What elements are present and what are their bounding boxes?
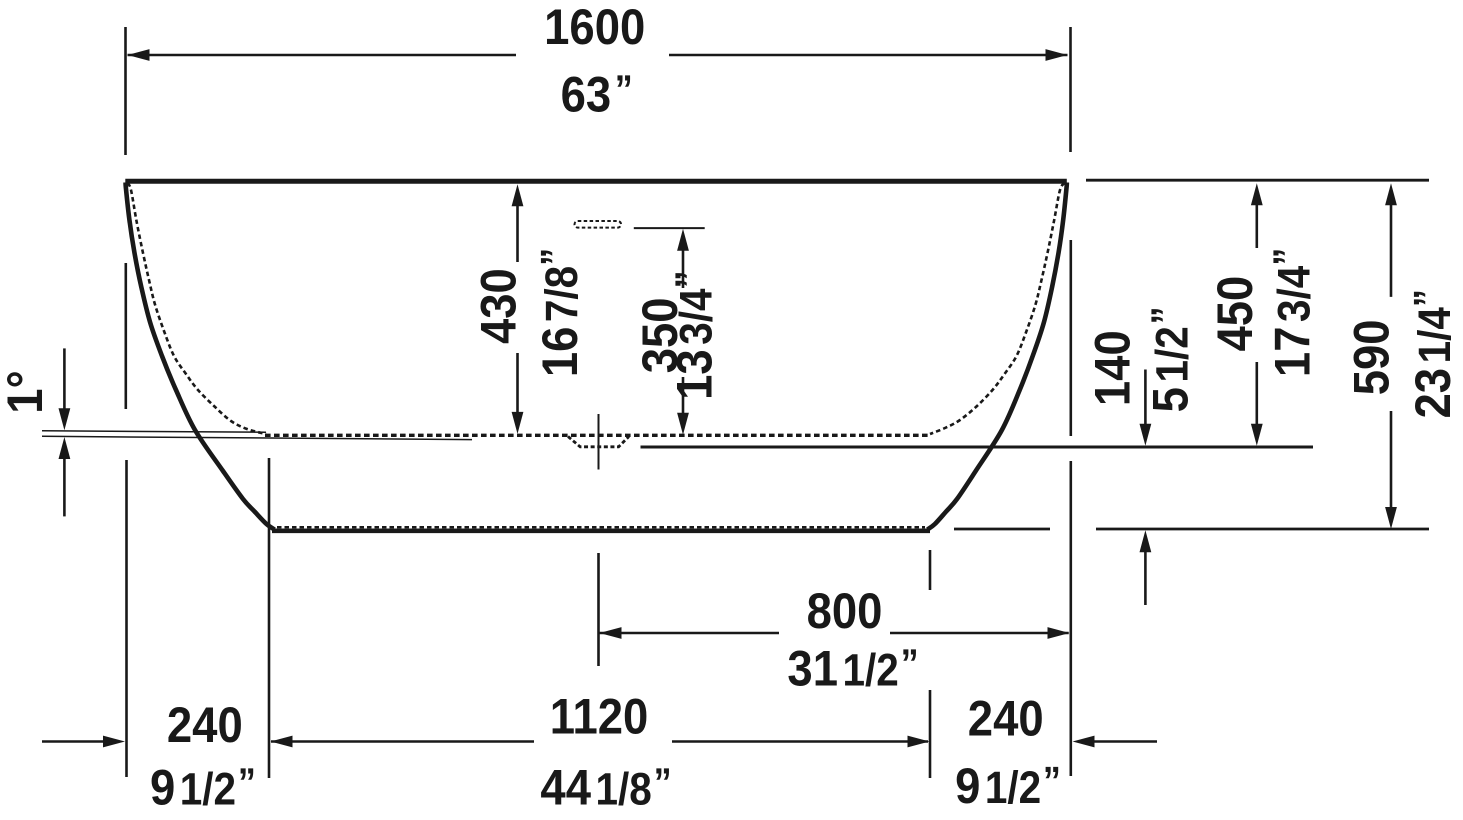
svg-text:133/4”: 133/4” [667, 271, 723, 400]
svg-text:1120: 1120 [550, 690, 649, 746]
svg-text:240: 240 [167, 698, 243, 754]
svg-text:231/4”: 231/4” [1406, 289, 1462, 418]
svg-text:91/2”: 91/2” [150, 760, 256, 815]
svg-text:51/2”: 51/2” [1143, 306, 1199, 412]
svg-text:140: 140 [1085, 330, 1141, 406]
svg-text:173/4”: 173/4” [1265, 248, 1321, 377]
svg-text:1600: 1600 [544, 0, 645, 55]
svg-text:240: 240 [968, 691, 1044, 747]
svg-text:167/8”: 167/8” [533, 248, 589, 377]
svg-text:800: 800 [807, 584, 883, 640]
svg-text:1°: 1° [0, 370, 54, 413]
svg-text:430: 430 [471, 268, 527, 344]
svg-text:311/2”: 311/2” [787, 641, 918, 697]
svg-text:63”: 63” [561, 67, 633, 123]
svg-text:590: 590 [1344, 319, 1400, 395]
svg-text:450: 450 [1208, 276, 1264, 352]
svg-text:91/2”: 91/2” [955, 759, 1061, 815]
svg-text:441/8”: 441/8” [540, 760, 671, 815]
